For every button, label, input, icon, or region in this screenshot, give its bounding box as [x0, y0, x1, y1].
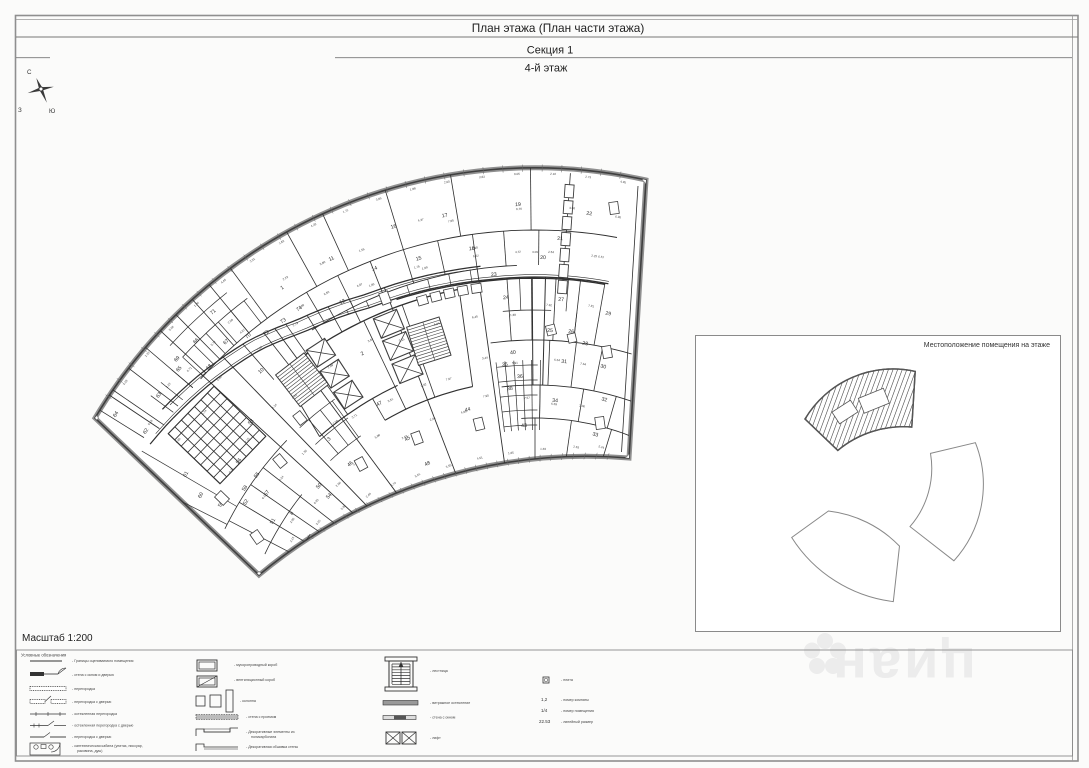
svg-text:7.32: 7.32 — [546, 303, 552, 307]
svg-text:- линейный размер: - линейный размер — [561, 720, 593, 724]
svg-text:План этажа (План части этажа): План этажа (План части этажа) — [472, 21, 645, 35]
svg-text:6.22: 6.22 — [473, 254, 480, 259]
svg-text:- стена с окном и дверью: - стена с окном и дверью — [72, 673, 114, 677]
svg-text:6.05: 6.05 — [514, 172, 520, 176]
svg-text:- Декоративная обшивка стены: - Декоративная обшивка стены — [246, 745, 299, 749]
svg-text:35: 35 — [502, 362, 508, 368]
svg-text:Условные обозначения: Условные обозначения — [21, 653, 66, 658]
svg-text:24: 24 — [503, 295, 509, 301]
svg-text:С: С — [27, 69, 32, 76]
svg-text:циан: циан — [830, 636, 976, 699]
svg-text:Секция 1: Секция 1 — [527, 45, 573, 57]
svg-text:38: 38 — [507, 386, 513, 392]
svg-text:28: 28 — [582, 341, 589, 348]
svg-text:1.39: 1.39 — [510, 313, 516, 317]
svg-text:Местоположение помещения на эт: Местоположение помещения на этаже — [924, 342, 1050, 349]
svg-text:5.69: 5.69 — [551, 402, 557, 406]
svg-text:40: 40 — [510, 350, 516, 356]
svg-text:Ю: Ю — [49, 108, 55, 115]
svg-text:43: 43 — [521, 423, 527, 429]
svg-text:22.53: 22.53 — [539, 719, 551, 724]
svg-text:4.72: 4.72 — [515, 250, 521, 254]
svg-text:3.68: 3.68 — [569, 206, 575, 210]
svg-text:6.76: 6.76 — [516, 207, 522, 211]
svg-text:36: 36 — [517, 374, 523, 380]
svg-text:5.91: 5.91 — [512, 361, 518, 365]
svg-text:2.73: 2.73 — [585, 175, 592, 180]
svg-text:3.83: 3.83 — [479, 175, 486, 180]
svg-text:- остекленная перегородка: - остекленная перегородка — [72, 712, 117, 716]
svg-text:4-й этаж: 4-й этаж — [525, 63, 568, 75]
svg-text:20: 20 — [540, 255, 546, 261]
svg-text:5.64: 5.64 — [554, 358, 560, 362]
svg-text:З: З — [18, 107, 22, 114]
svg-text:26: 26 — [568, 329, 574, 336]
svg-text:- сантехническая кабина (унит: - сантехническая кабина (унитаз, писсуар… — [72, 744, 143, 748]
svg-text:- Декоративные элементы из: - Декоративные элементы из — [246, 730, 295, 734]
svg-text:- витражное остекление: - витражное остекление — [430, 701, 470, 705]
svg-text:7.57: 7.57 — [524, 396, 530, 400]
svg-text:23: 23 — [491, 272, 497, 279]
svg-text:- лестница: - лестница — [430, 669, 448, 673]
svg-text:- стена с окном: - стена с окном — [430, 716, 456, 720]
svg-text:- колонна: - колонна — [240, 699, 256, 703]
svg-text:- Границы оцениваемого помеще: - Границы оцениваемого помещения — [72, 659, 133, 663]
svg-text:1,2: 1,2 — [541, 697, 548, 702]
svg-text:- мусоропроводный короб: - мусоропроводный короб — [234, 663, 277, 667]
svg-text:- перегородка: - перегородка — [72, 687, 95, 691]
svg-text:- перегородка с дверью: - перегородка с дверью — [72, 735, 112, 739]
svg-text:- перегородка с дверью: - перегородка с дверью — [72, 700, 112, 704]
svg-text:31: 31 — [561, 359, 567, 365]
svg-text:- плита: - плита — [561, 678, 573, 682]
svg-text:1/4: 1/4 — [541, 708, 548, 713]
svg-text:2.18: 2.18 — [550, 172, 556, 176]
svg-text:25: 25 — [547, 328, 553, 334]
svg-text:3.09: 3.09 — [532, 250, 538, 254]
svg-text:2.29: 2.29 — [591, 254, 598, 259]
svg-text:1.85: 1.85 — [508, 451, 515, 456]
svg-text:- остекленная перегородка с д: - остекленная перегородка с дверью — [72, 724, 134, 728]
svg-text:- вентиляционный короб: - вентиляционный короб — [234, 678, 275, 682]
svg-text:2.54: 2.54 — [548, 250, 554, 254]
svg-text:- номер помещения: - номер помещения — [561, 709, 594, 713]
svg-text:раковина, душ): раковина, душ) — [77, 749, 102, 753]
svg-text:22: 22 — [586, 211, 593, 218]
svg-text:- лифт: - лифт — [430, 736, 441, 740]
svg-text:21: 21 — [557, 236, 563, 242]
svg-text:- номер комнаты: - номер комнаты — [561, 698, 589, 702]
svg-text:27: 27 — [558, 297, 564, 303]
svg-text:поликарбоната: поликарбоната — [251, 735, 276, 739]
svg-text:1.83: 1.83 — [540, 447, 546, 451]
svg-text:Масштаб 1:200: Масштаб 1:200 — [22, 632, 93, 644]
svg-text:- стена с проемом: - стена с проемом — [246, 715, 277, 719]
